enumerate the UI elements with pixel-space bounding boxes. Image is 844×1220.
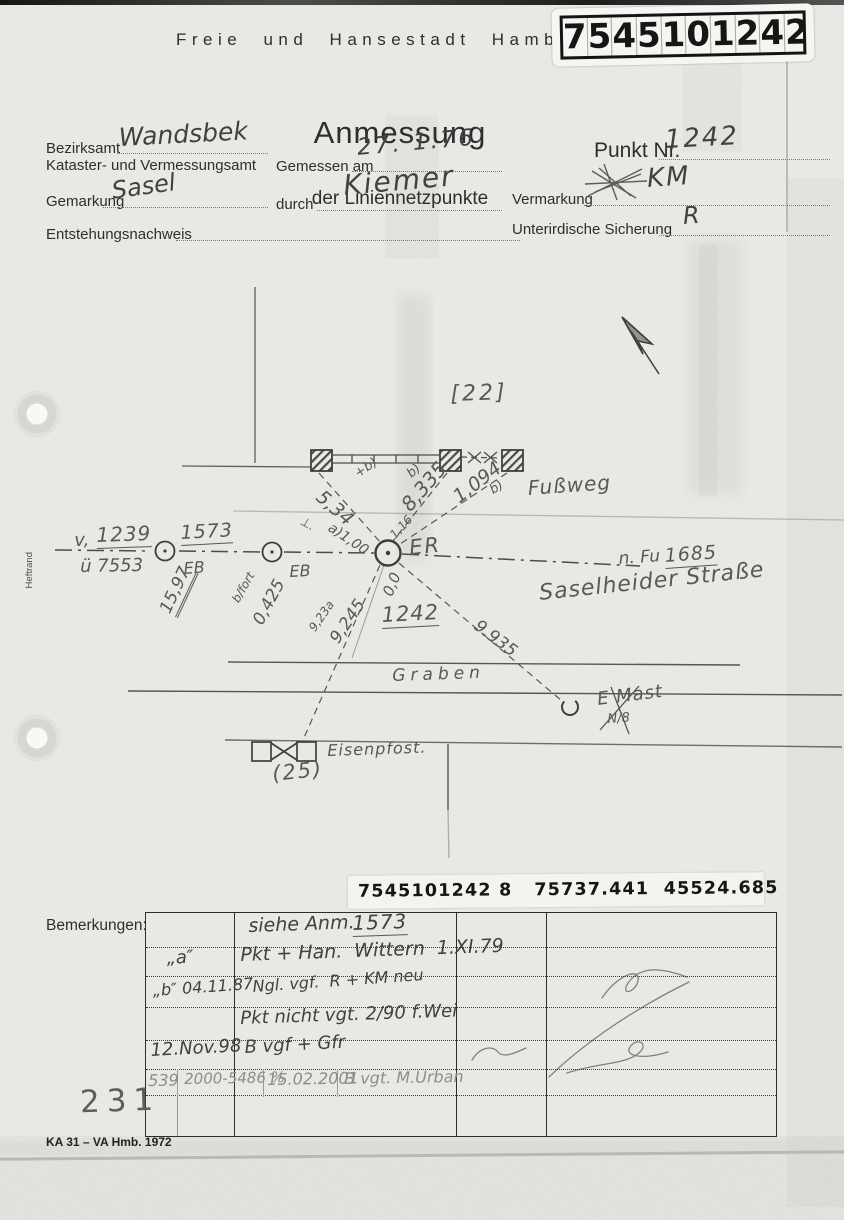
stamp-digit: 4: [759, 14, 784, 53]
table-row-rule: [146, 1095, 776, 1096]
power-mast-symbol: [559, 696, 582, 719]
previous-point-prefix: v,: [74, 529, 90, 551]
remark-row2-index: „a″: [166, 947, 194, 969]
coordinate-stamp: 7545101242 8 75737.441 45524.685: [348, 872, 764, 909]
heftrand-label: Heftrand: [24, 552, 35, 588]
stamp-digit: 2: [784, 13, 809, 52]
entstehungsnachweis-rule: [176, 240, 520, 241]
north-arrow-icon: [622, 317, 659, 374]
iron-post-label: Eisenpfost.: [327, 738, 427, 760]
page-number-stamp: 231: [79, 1082, 160, 1121]
stamp-digit: 0: [685, 15, 710, 54]
punch-hole-top: [13, 390, 61, 438]
point-id-stamp: 7 5 4 5 1 0 1 2 4 2: [551, 3, 814, 66]
bemerkungen-label: Bemerkungen:: [46, 917, 147, 935]
remark-row1-text: siehe Anm.: [248, 911, 355, 937]
boundary-lines: [182, 287, 844, 520]
unterirdische-sicherung-value: R: [682, 201, 701, 230]
power-mast-note: N/8: [607, 710, 630, 727]
survey-point-eb1: [156, 542, 175, 561]
previous-point-number: 1239: [96, 521, 152, 549]
bezirksamt-label: Bezirksamt: [46, 140, 120, 157]
unterirdische-sicherung-label: Unterirdische Sicherung: [512, 221, 672, 238]
vermarkung-strikeout-scribble: [585, 164, 647, 200]
survey-point-er: [376, 541, 401, 566]
punkt-nr-value: 1242: [664, 121, 740, 155]
unterirdische-sicherung-rule: [659, 235, 830, 236]
remark-row6-cell4: B vgt. M.Urban: [344, 1067, 464, 1088]
punkt-nr-rule: [659, 159, 830, 160]
ditch-label: Graben: [392, 663, 485, 686]
block-reference: [22]: [450, 380, 508, 407]
previous-point-alt: ü 7553: [80, 555, 143, 577]
point-1573-number: 1573: [180, 519, 234, 546]
coordinate-stamp-text: 7545101242 8 75737.441 45524.685: [358, 878, 779, 902]
stamp-digit: 1: [660, 16, 685, 55]
vermarkung-label: Vermarkung: [512, 191, 593, 208]
point-eb2-label: EB: [289, 561, 311, 581]
point-er-label: ER: [408, 533, 442, 560]
point-number-1242: 1242: [381, 600, 440, 629]
entstehungsnachweis-label: Entstehungsnachweis: [46, 226, 192, 243]
bezirksamt-rule: [117, 153, 268, 154]
vermarkung-rule: [584, 205, 830, 206]
durch-rule: [317, 210, 502, 211]
stamp-digit: 2: [734, 14, 759, 53]
stamp-digit: 1: [710, 15, 735, 54]
stamp-digit: 5: [586, 18, 611, 57]
point-id-stamp-frame: 7 5 4 5 1 0 1 2 4 2: [560, 10, 807, 59]
ditch-lines: [128, 662, 842, 858]
scanned-survey-form: Freie und Hansestadt Hamb 7 5 4 5 1 0 1 …: [0, 0, 844, 1220]
remark-row1-reference: 1573: [352, 909, 408, 937]
survey-point-eb2: [263, 543, 282, 562]
gemarkung-rule: [103, 207, 268, 208]
form-code-label: KA 31 – VA Hmb. 1972: [46, 1135, 172, 1149]
next-point-prefix: n. Fu: [618, 546, 661, 569]
stamp-digit: 4: [611, 17, 636, 56]
punch-hole-bottom: [13, 714, 61, 762]
agency-header: Freie und Hansestadt Hamb: [176, 30, 559, 50]
stamp-digit: 7: [563, 18, 587, 56]
stamp-digit: 5: [636, 16, 661, 55]
durch-label: durch: [276, 196, 314, 213]
vermarkung-value: KM: [646, 161, 691, 194]
